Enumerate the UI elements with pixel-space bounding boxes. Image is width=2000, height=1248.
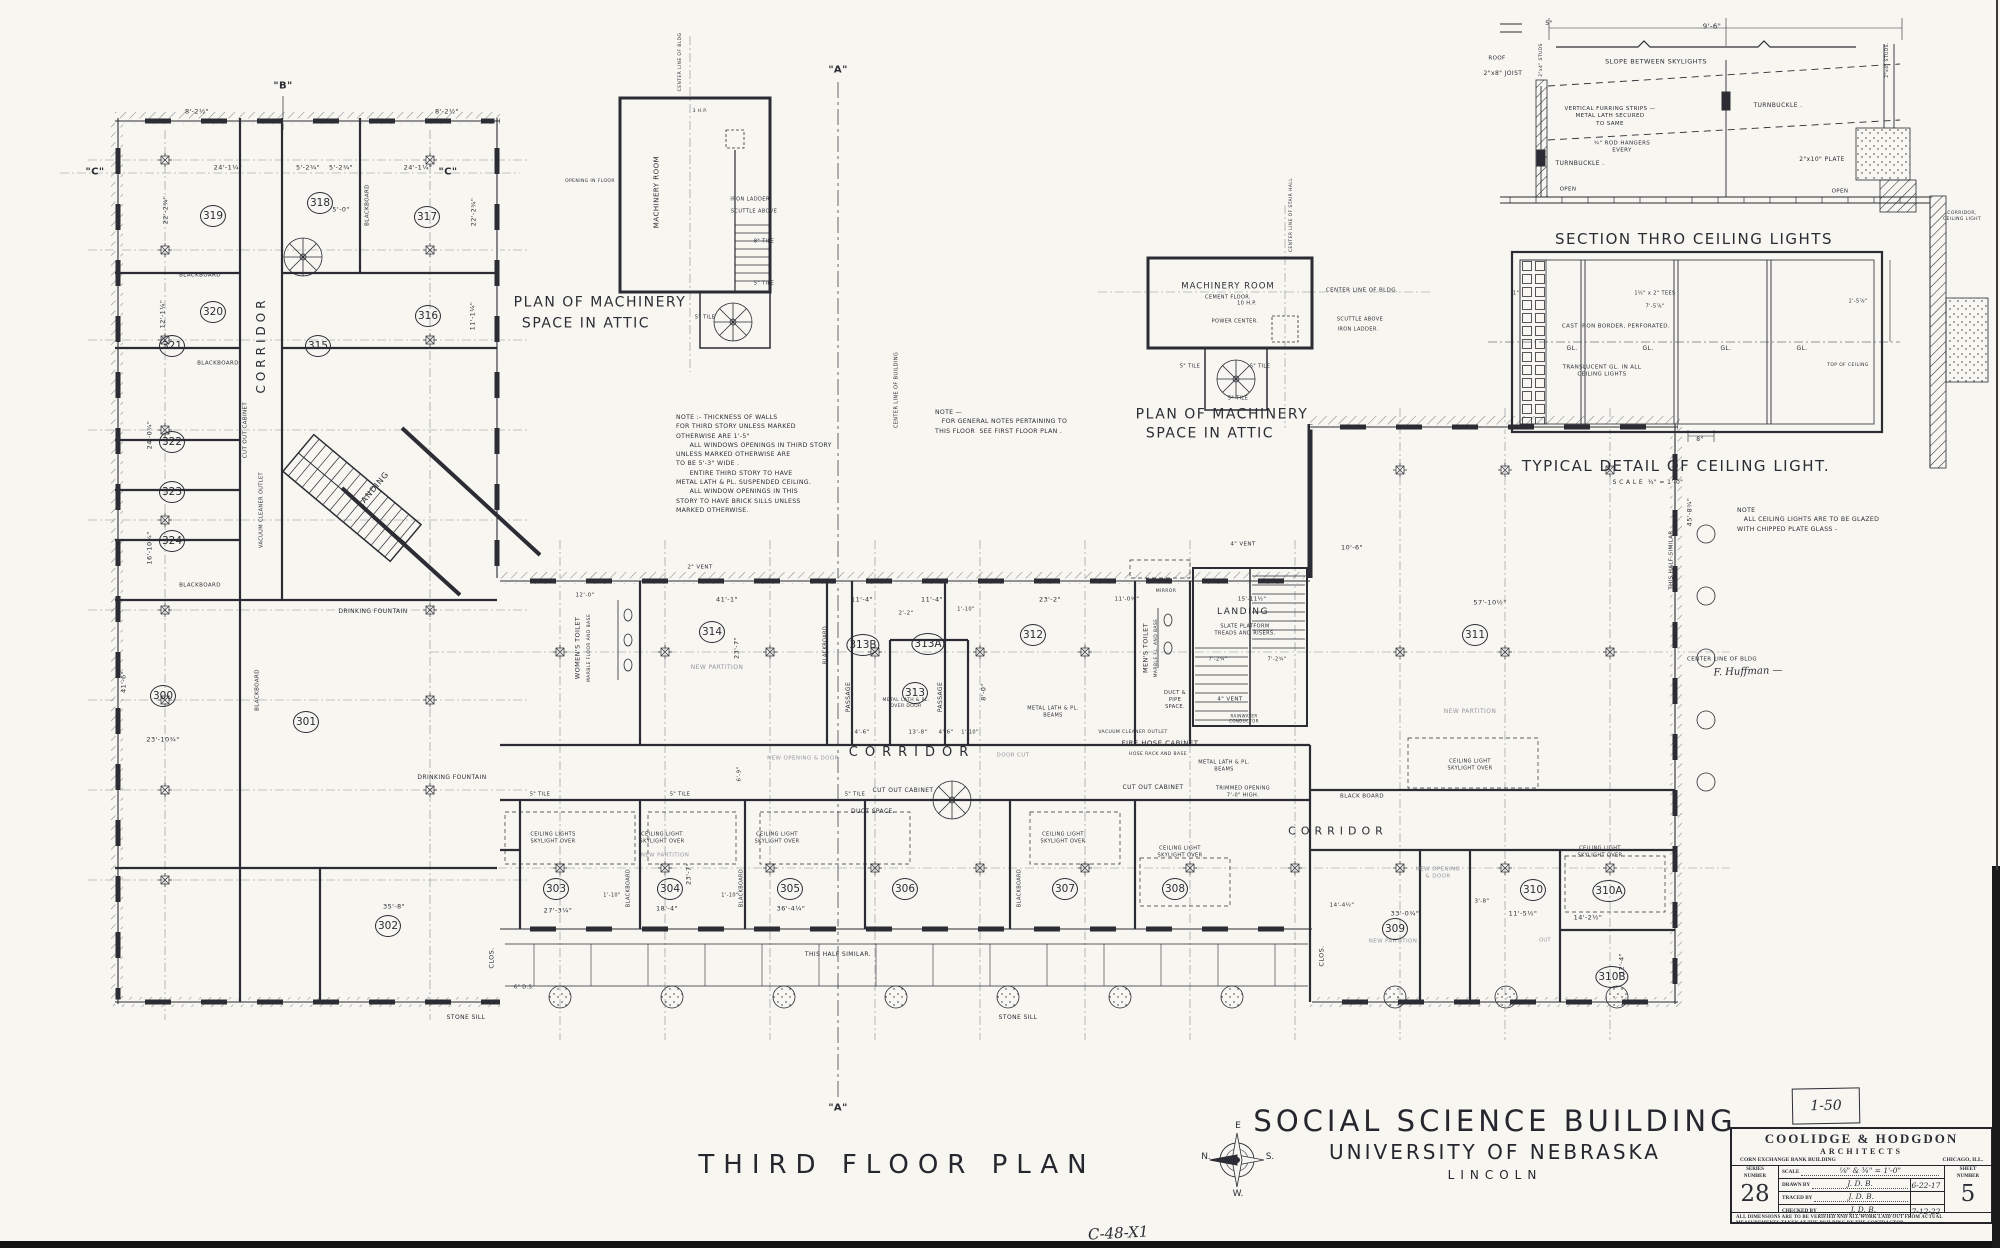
plan-label: CENTER LINE OF BLDG.	[1326, 287, 1398, 294]
room-number: 308	[1162, 878, 1188, 900]
machinery-plan-title: SPACE IN ATTIC	[1146, 425, 1274, 444]
dimension-label: 5'-2¾"	[296, 164, 320, 173]
series-number-cell: SERIES NUMBER 28	[1732, 1166, 1778, 1212]
plan-label: MARBLE FL. AND BASE	[1154, 619, 1160, 678]
plan-label: BLACKBOARD	[739, 869, 746, 907]
plan-label: SLATE PLATFORM TREADS AND RISERS.	[1214, 623, 1275, 637]
colonnade	[505, 525, 1715, 1008]
machinery-plan-title: SPACE IN ATTIC	[522, 315, 650, 334]
scan-edge-right	[1992, 866, 2000, 1248]
room-number: 309	[1382, 918, 1408, 940]
dimension-label: 10'-6"	[1341, 544, 1363, 553]
plan-label: VACUUM CLEANER OUTLET	[259, 472, 266, 548]
plan-label: MIRROR	[1156, 589, 1177, 595]
architect-firm: COOLIDGE & HODGDON	[1732, 1131, 1991, 1147]
room-number: 324	[159, 530, 185, 552]
room-number: 304	[657, 878, 683, 900]
traced-value: J. D. B.	[1848, 1192, 1874, 1201]
plan-label: METAL LATH & PL. BEAMS	[1027, 705, 1079, 719]
plan-label: BLACKBOARD	[179, 582, 221, 589]
plan-label: GL.	[1796, 345, 1807, 353]
plan-label: 5" TILE	[845, 792, 865, 799]
plan-label: NEW PARTITION	[1444, 708, 1496, 716]
room-number: 300	[150, 685, 176, 707]
plan-label: 5" TILE	[1228, 396, 1248, 403]
plan-label: 2"x8" JOIST	[1484, 70, 1523, 78]
compass-south: S.	[1266, 1152, 1275, 1162]
plan-label: PASSAGE	[937, 682, 945, 712]
dimension-label: 7'-2¾"	[1267, 657, 1286, 664]
dimension-label: 11'-4"	[921, 596, 943, 605]
plan-label: IRON LADDER.	[1337, 327, 1378, 334]
room-number: 323	[159, 481, 185, 503]
dimension-label: 14'-4½"	[1330, 902, 1355, 909]
section-marker-c: "C"	[439, 165, 458, 179]
plan-label: 4" VENT	[1230, 541, 1255, 548]
plan-label: CEILING LIGHT SKYLIGHT OVER	[1041, 831, 1086, 845]
plan-label: RAINWATER CONDUCTOR	[1229, 714, 1259, 725]
drawn-label: DRAWN BY	[1782, 1182, 1810, 1188]
plan-label: OPENING IN FLOOR	[565, 179, 615, 185]
room-number: 310	[1520, 879, 1546, 901]
plan-label: 6" D.S.	[514, 985, 534, 992]
plan-label: CEILING LIGHT SKYLIGHT OVER	[640, 831, 685, 845]
dimension-label: 24'-1¼"	[214, 164, 243, 173]
plan-label: DUCT SPACE.	[851, 808, 895, 816]
series-value: 28	[1740, 1181, 1769, 1207]
dimension-label: 11'-0¾"	[1115, 596, 1140, 603]
plan-label: CORRIDOR, CEILING LIGHT	[1943, 211, 1981, 223]
sheet-value: 5	[1961, 1181, 1976, 1207]
plan-label: STONE SILL	[999, 1014, 1038, 1022]
corridor-label: CORRIDOR	[849, 744, 975, 762]
section-marker-a: "A"	[828, 1101, 847, 1115]
plan-label: 4" VENT	[1217, 696, 1242, 703]
dimension-label: 11'-1¼"	[469, 302, 478, 331]
dimension-label: 16'-10¾"	[146, 531, 155, 564]
university-title: UNIVERSITY OF NEBRASKA	[1329, 1140, 1661, 1164]
compass-west: W.	[1233, 1189, 1244, 1199]
dimension-label: 7'-5⅞"	[1645, 304, 1664, 311]
plan-label: GL.	[1566, 345, 1577, 353]
plan-label: BLACKBOARD	[626, 869, 633, 907]
plan-label: VACUUM CLEANER OUTLET	[1098, 730, 1167, 736]
plan-label: TRIMMED OPENING 7'-0" HIGH.	[1216, 785, 1270, 799]
scan-edge-bottom	[0, 1241, 2000, 1248]
dimension-label: 57'-10½"	[1473, 599, 1506, 608]
traced-date	[1910, 1192, 1941, 1204]
dimension-label: 36'-4¼"	[777, 905, 806, 914]
plan-label: OPEN	[1832, 188, 1849, 195]
plan-label: CEILING LIGHTS SKYLIGHT OVER	[530, 831, 575, 845]
plan-label: 2"x4" STUDS	[1539, 43, 1545, 77]
room-number: 310A	[1592, 880, 1625, 902]
room-number: 319	[200, 205, 226, 227]
plan-label: WOMEN'S TOILET	[574, 617, 583, 679]
dimension-label: 4'-6"	[938, 729, 953, 736]
dimension-label: 4'-6"	[854, 729, 869, 736]
stair-hall-walls	[342, 428, 540, 595]
firm-city: CHICAGO, ILL.	[1943, 1157, 1984, 1163]
plan-label: PASSAGE	[845, 682, 853, 712]
compass-north: N.	[1201, 1152, 1211, 1162]
plan-label: HOSE RACK AND BASE	[1129, 752, 1187, 758]
plan-label: LANDING	[1217, 606, 1269, 618]
dimension-label: 1'-10"	[961, 730, 978, 737]
room-number: 322	[159, 431, 185, 453]
dimension-label: 45'-8¾"	[1686, 498, 1695, 527]
plan-label: CUT OUT CABINET	[242, 402, 249, 458]
room-number: 310B	[1595, 966, 1628, 988]
room-number: 313A	[911, 633, 944, 655]
dimension-label: 11'-5½"	[1509, 910, 1538, 919]
dimension-label: 23'-10¾"	[146, 736, 179, 745]
blueprint-sheet: "A""A""B""C""C"8'-2½"8'-2½"24'-1¼"5'-2¾"…	[0, 0, 2000, 1248]
section-marker-a: "A"	[828, 63, 847, 77]
plan-label: CENTER LINE OF BLDG	[678, 33, 684, 92]
dimension-label: 22'-2¾"	[470, 198, 479, 227]
room-number: 306	[892, 878, 918, 900]
plan-label: 8" TILE	[754, 239, 774, 246]
dimension-label: 8'-2½"	[435, 108, 459, 117]
plan-label: 10 H.P.	[1237, 301, 1257, 308]
scale-value: ⅛" & ¾" = 1'-0"	[1839, 1166, 1901, 1175]
pencil-signature: F. Huffman —	[1713, 664, 1782, 680]
dimension-label: 1'-10"	[721, 893, 738, 900]
corridor-label: CORRIDOR	[253, 296, 269, 393]
dimension-label: 12'-0"	[576, 592, 595, 599]
plan-label: SCUTTLE ABOVE	[731, 209, 777, 216]
compass-rose	[1210, 1133, 1264, 1187]
note-general: NOTE — FOR GENERAL NOTES PERTAINING TO T…	[935, 408, 1067, 436]
plan-label: CUT OUT CABINET	[1123, 784, 1184, 792]
room-number: 311	[1462, 624, 1488, 646]
plan-label: CEILING LIGHT SKYLIGHT OVER	[1578, 845, 1623, 859]
plan-label: FIRE HOSE CABINET	[1122, 739, 1199, 748]
plan-label: CUT OUT CABINET	[873, 787, 934, 795]
room-number: 305	[777, 878, 803, 900]
plan-label: IRON LADDER	[730, 197, 769, 204]
machinery-room-label: MACHINERY ROOM	[1181, 281, 1274, 292]
dimension-label: 9'-6"	[1703, 22, 1722, 31]
dimension-label: 11'-4"	[851, 596, 873, 605]
drawn-value: J. D. B.	[1847, 1179, 1873, 1188]
plan-label: NEW PARTITION	[691, 664, 743, 672]
plan-label: 2"x10" PLATE	[1799, 156, 1844, 164]
series-label: SERIES NUMBER	[1744, 1167, 1766, 1180]
dimension-label: 1'-10"	[603, 893, 620, 900]
plan-label: 5" TILE	[1250, 364, 1270, 371]
plan-label: BLACKBOARD	[823, 626, 830, 664]
plan-label: 5" TILE	[1180, 364, 1200, 371]
machinery-plan-title: PLAN OF MACHINERY	[1136, 406, 1309, 425]
plan-label: 1½" x 2" TEES	[1634, 291, 1675, 298]
scale-row: SCALE ⅛" & ¾" = 1'-0"	[1779, 1166, 1944, 1179]
dimension-label: 13'-8"	[909, 729, 928, 736]
dimension-label: 1'-5⅞"	[1848, 299, 1867, 306]
plan-label: THIS HALF SIMILAR.	[805, 951, 871, 959]
checked-label: CHECKED BY	[1782, 1208, 1817, 1214]
room-number: 318	[307, 192, 333, 214]
plan-label: MEN'S TOILET	[1142, 623, 1151, 673]
plan-label: DRINKING FOUNTAIN	[417, 774, 486, 782]
drawn-by-row: DRAWN BY J. D. B. 6-22-17	[1779, 1179, 1944, 1192]
plan-label: 3 H.P.	[693, 109, 708, 115]
plan-label: THIS HALF SIMILAR	[1668, 530, 1675, 589]
plan-label: SLOPE BETWEEN SKYLIGHTS	[1605, 58, 1707, 67]
plan-label: CLOS.	[488, 947, 497, 968]
sheet-number-cell: SHEET NUMBER 5	[1945, 1166, 1991, 1212]
dimension-label: 18'-4"	[656, 905, 678, 914]
plan-label: BLACKBOARD	[197, 360, 239, 367]
note-glazing: NOTE ALL CEILING LIGHTS ARE TO BE GLAZED…	[1737, 506, 1879, 534]
dimension-label: 15'-11½"	[1238, 596, 1267, 603]
title-block: COOLIDGE & HODGDON ARCHITECTS CORN EXCHA…	[1730, 1127, 1993, 1224]
room-number: 303	[543, 878, 569, 900]
room-number: 313B	[846, 634, 879, 656]
checked-value: J. D. B.	[1851, 1205, 1877, 1214]
room-number: 316	[415, 305, 441, 327]
dimension-label: 2'-2"	[898, 610, 913, 617]
dimension-label: 41'-1"	[716, 596, 738, 605]
dimension-label: 24'-1¼"	[404, 164, 433, 173]
dimension-label: 22'-2¾"	[162, 196, 171, 225]
title-block-disclaimer: ALL DIMENSIONS ARE TO BE VERIFIED AND AL…	[1732, 1213, 1991, 1229]
dimension-label: 23'-7"	[685, 863, 694, 885]
room-number: 312	[1020, 624, 1046, 646]
plan-label: ¾" ROD HANGERS EVERY	[1594, 141, 1650, 156]
corridor-label: CORRIDOR	[1288, 825, 1388, 840]
plan-label: VERTICAL FURRING STRIPS — METAL LATH SEC…	[1565, 106, 1656, 128]
plan-label: 5" TILE	[670, 792, 690, 799]
dimension-label: 8'-0"	[980, 683, 989, 700]
dimension-label: 5'-0"	[332, 206, 349, 215]
plan-label: CLOS.	[1318, 945, 1327, 966]
plan-label: 2"x4" STUDS.	[1885, 42, 1891, 77]
dimension-label: 23'-7"	[733, 637, 742, 659]
room-number: 320	[200, 301, 226, 323]
dimension-label: 1"	[1513, 291, 1519, 298]
dimension-label: 41'-6"	[120, 671, 129, 693]
plan-label: DRINKING FOUNTAIN	[338, 608, 407, 616]
plan-label: BLACKBOARD	[364, 184, 371, 226]
stamp-box: 1-50	[1792, 1087, 1861, 1124]
sheet-title: THIRD FLOOR PLAN	[698, 1150, 1095, 1180]
plan-label: SCUTTLE ABOVE	[1337, 317, 1383, 324]
plan-label: 2" VENT	[687, 564, 712, 571]
plan-label: CEILING LIGHT SKYLIGHT OVER	[1448, 758, 1493, 772]
machinery-plan-title: PLAN OF MACHINERY	[514, 294, 687, 313]
plan-label: CEILING LIGHT SKYLIGHT OVER	[755, 831, 800, 845]
plan-label: BLACKBOARD	[179, 272, 221, 279]
detail-title: TYPICAL DETAIL OF CEILING LIGHT.	[1522, 456, 1830, 476]
plan-label: POWER CENTER.	[1212, 319, 1259, 326]
dimension-label: 12'-1¼"	[159, 300, 168, 329]
note-wall-thickness: NOTE :- THICKNESS OF WALLS FOR THIRD STO…	[676, 413, 832, 515]
plan-label: STONE SILL	[447, 1014, 486, 1022]
plan-label: OPEN	[1560, 186, 1577, 193]
plan-label: NEW PARTITION	[641, 852, 690, 859]
plan-label: CENTER LINE OF BUILDING	[894, 352, 901, 428]
plan-label: CAST IRON BORDER, PERFORATED.	[1562, 323, 1670, 330]
spiral-stair	[284, 238, 322, 276]
room-number: 321	[159, 335, 185, 357]
drawn-date: 6-22-17	[1910, 1179, 1941, 1191]
dimension-label: 3'-8"	[1474, 898, 1489, 905]
section-marker-b: "B"	[273, 79, 292, 93]
room-number: 314	[699, 621, 725, 643]
plan-label: OUT	[1539, 938, 1551, 945]
plan-label: 5" TILE	[530, 792, 550, 799]
room-number: 302	[375, 915, 401, 937]
plan-label: TOP OF CEILING	[1827, 363, 1869, 369]
dimension-label: 5"	[1545, 20, 1552, 28]
traced-by-row: TRACED BY J. D. B.	[1779, 1192, 1944, 1205]
sheet-label: SHEET NUMBER	[1957, 1167, 1979, 1180]
dimension-label: 8"	[1696, 436, 1703, 444]
dimension-label: 14'-2½"	[1574, 914, 1603, 923]
dimension-label: 5'-2¾"	[329, 164, 353, 173]
scan-edge-right-thin	[1996, 0, 1998, 870]
plan-label: TURNBUCKLE .	[1555, 160, 1604, 168]
room-number: 313	[902, 682, 928, 704]
dimension-label: 7'-2¾"	[1208, 657, 1227, 664]
compass-east: E	[1235, 1121, 1241, 1131]
room-number: 301	[293, 711, 319, 733]
plan-label: BLACKBOARD	[254, 669, 261, 711]
spiral-stair	[933, 781, 971, 819]
section-title: SECTION THRO CEILING LIGHTS	[1555, 229, 1833, 249]
plan-label: BLACKBOARD	[1017, 869, 1024, 907]
plan-label: DUCT & PIPE SPACE.	[1164, 690, 1186, 710]
plan-label: GL.	[1642, 345, 1653, 353]
room-number: 315	[305, 335, 331, 357]
stamp-value: 1-50	[1810, 1098, 1842, 1115]
plan-label: CENTER LINE OF STAIR HALL	[1289, 178, 1295, 252]
plan-label: S C A L E ¾" = 1'-0"	[1613, 479, 1684, 487]
section-marker-c: "C"	[86, 165, 105, 179]
plan-label: TURNBUCKLE .	[1753, 102, 1802, 110]
plan-label: TRANSLUCENT GL. IN ALL CEILING LIGHTS	[1563, 365, 1642, 380]
plan-label: 5" TILE	[754, 281, 774, 288]
dimension-label: 24'-0¾"	[146, 421, 155, 450]
building-title: SOCIAL SCIENCE BUILDING	[1253, 1104, 1736, 1138]
traced-label: TRACED BY	[1782, 1195, 1812, 1201]
plan-label: DOOR CUT	[997, 752, 1030, 759]
dimension-label: 8'-2½"	[185, 108, 209, 117]
room-number: 317	[414, 206, 440, 228]
plan-label: NEW OPENING & DOOR	[767, 755, 839, 762]
dimension-label: 23'-2"	[1039, 596, 1061, 605]
plan-label: METAL LATH & PL. BEAMS	[1198, 759, 1250, 773]
plan-label: 5" TILE	[695, 315, 715, 322]
plan-label: CENTER LINE OF BLDG	[1687, 656, 1757, 663]
city-title: LINCOLN	[1448, 1168, 1543, 1182]
machinery-room-label: MACHINERY ROOM	[652, 156, 661, 228]
dimension-label: 35'-8"	[383, 903, 405, 912]
plan-label: BLACK BOARD	[1340, 793, 1384, 800]
floor-plan-linework	[0, 0, 2000, 1248]
dimension-label: 6'-9"	[736, 766, 743, 781]
plan-label: CEILING LIGHT SKYLIGHT OVER	[1158, 845, 1203, 859]
plan-label: MARBLE FLOOR AND BASE	[587, 614, 593, 682]
dimension-label: 27'-3¼"	[544, 907, 573, 916]
plan-label: GL.	[1720, 345, 1731, 353]
scale-label: SCALE	[1782, 1169, 1799, 1175]
dimension-label: 1'-10"	[957, 607, 974, 614]
plan-label: ROOF	[1488, 55, 1505, 62]
plan-label: NEW OPENING & DOOR	[1416, 867, 1460, 882]
main-stair	[1193, 568, 1307, 726]
room-number: 307	[1052, 878, 1078, 900]
firm-address: CORN EXCHANGE BANK BUILDING	[1740, 1157, 1836, 1163]
architect-role: ARCHITECTS	[1732, 1147, 1991, 1156]
